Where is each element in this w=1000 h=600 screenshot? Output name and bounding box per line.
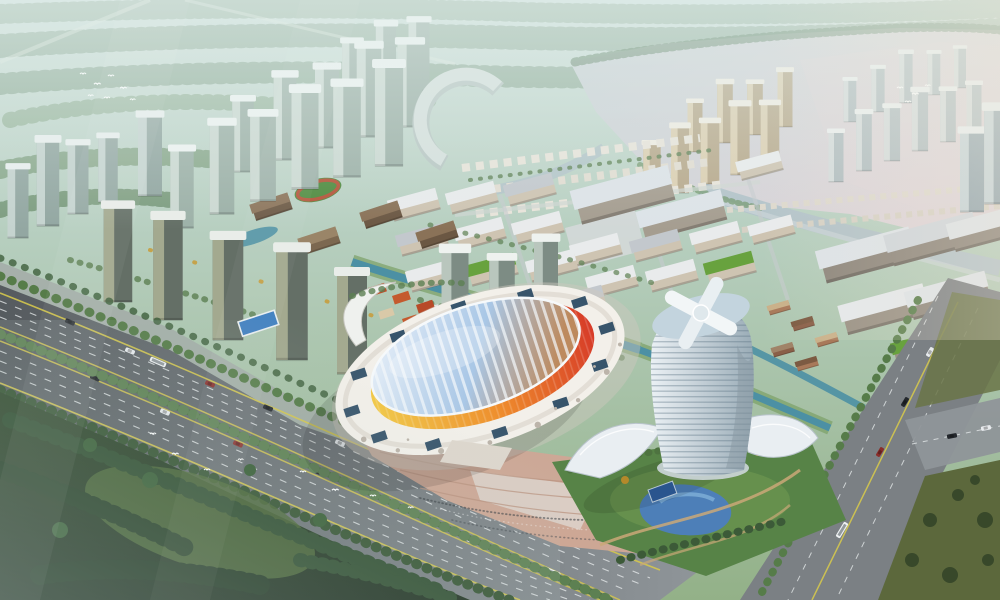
- tree: [905, 553, 919, 567]
- tree: [942, 567, 958, 583]
- tree: [952, 489, 964, 501]
- tree: [977, 512, 993, 528]
- dusk-glow-right: [760, 0, 1000, 340]
- tree: [970, 475, 980, 485]
- crown-hub: [693, 305, 709, 321]
- tree: [923, 513, 937, 527]
- render-canvas: [0, 0, 1000, 600]
- tree: [982, 554, 994, 566]
- aerial-masterplan-render: [0, 0, 1000, 600]
